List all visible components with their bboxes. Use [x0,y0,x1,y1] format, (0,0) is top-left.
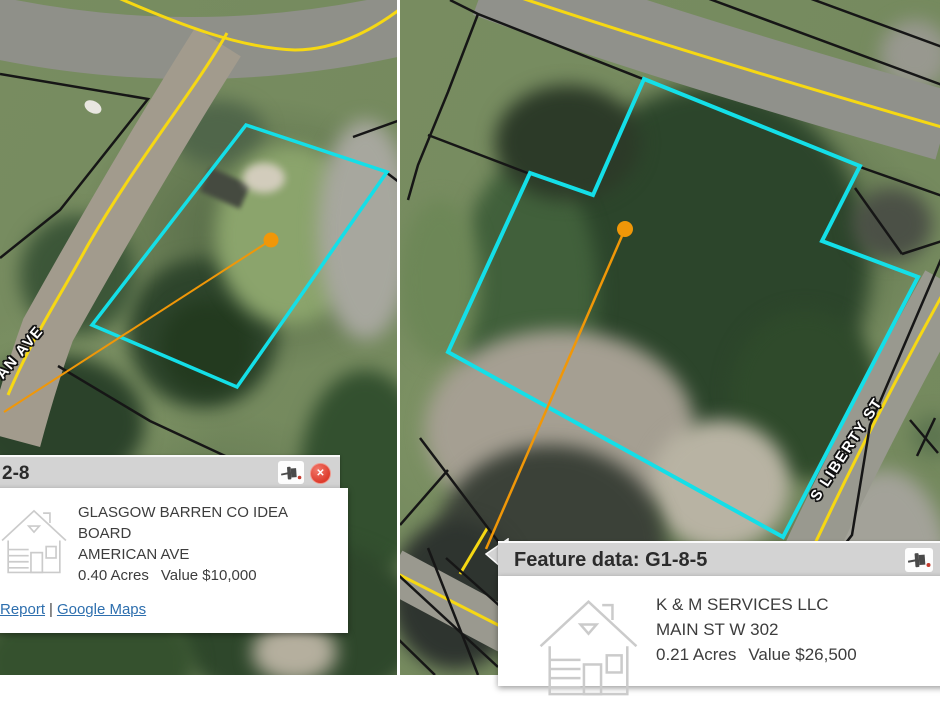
pin-button[interactable] [905,548,933,572]
close-icon: ✕ [316,468,324,479]
parcel-info: K & M SERVICES LLC MAIN ST W 302 0.21 Ac… [656,592,940,667]
owner-name: GLASGOW BARREN CO IDEA BOARD [78,502,312,544]
popup-title: 2-8 [0,457,29,485]
google-maps-link[interactable]: Google Maps [57,601,146,618]
parcel-acreage: 0.21 Acres [656,645,736,664]
feature-data-popup-right: Feature data: G1-8-5 [486,540,940,675]
close-button[interactable]: ✕ [310,463,331,484]
marker-leader-line [486,229,625,549]
house-icon [526,596,651,701]
owner-name: K & M SERVICES LLC [656,592,940,617]
popup-body: K & M SERVICES LLC MAIN ST W 302 0.21 Ac… [498,576,940,686]
parcel-address: AMERICAN AVE [78,544,328,565]
parcel-value: Value $26,500 [748,645,856,664]
road-surface [14,42,218,440]
parcel-address: MAIN ST W 302 [656,617,940,642]
road-centerline [460,527,488,574]
parcel-value: Value $10,000 [161,567,257,584]
popup-title: Feature data: G1-8-5 [498,543,707,572]
pin-button[interactable] [278,461,304,484]
parcel-marker-dot[interactable] [264,233,279,248]
popup-links: Report|Google Maps [0,601,146,618]
house-icon [0,496,72,588]
pushpin-icon [907,550,931,570]
parcel-acreage: 0.40 Acres [78,567,149,584]
link-separator: | [49,601,53,618]
pushpin-icon [280,464,302,482]
popup-header: 2-8 ✕ [0,455,340,490]
parcel-info: GLASGOW BARREN CO IDEA BOARD AMERICAN AV… [78,502,328,586]
popup-body: GLASGOW BARREN CO IDEA BOARD AMERICAN AV… [0,488,348,633]
vehicle [82,97,104,116]
feature-data-popup-left: 2-8 ✕ [0,455,348,633]
popup-header: Feature data: G1-8-5 [498,541,940,578]
parcel-marker-dot[interactable] [617,221,633,237]
report-link[interactable]: Report [0,601,45,618]
